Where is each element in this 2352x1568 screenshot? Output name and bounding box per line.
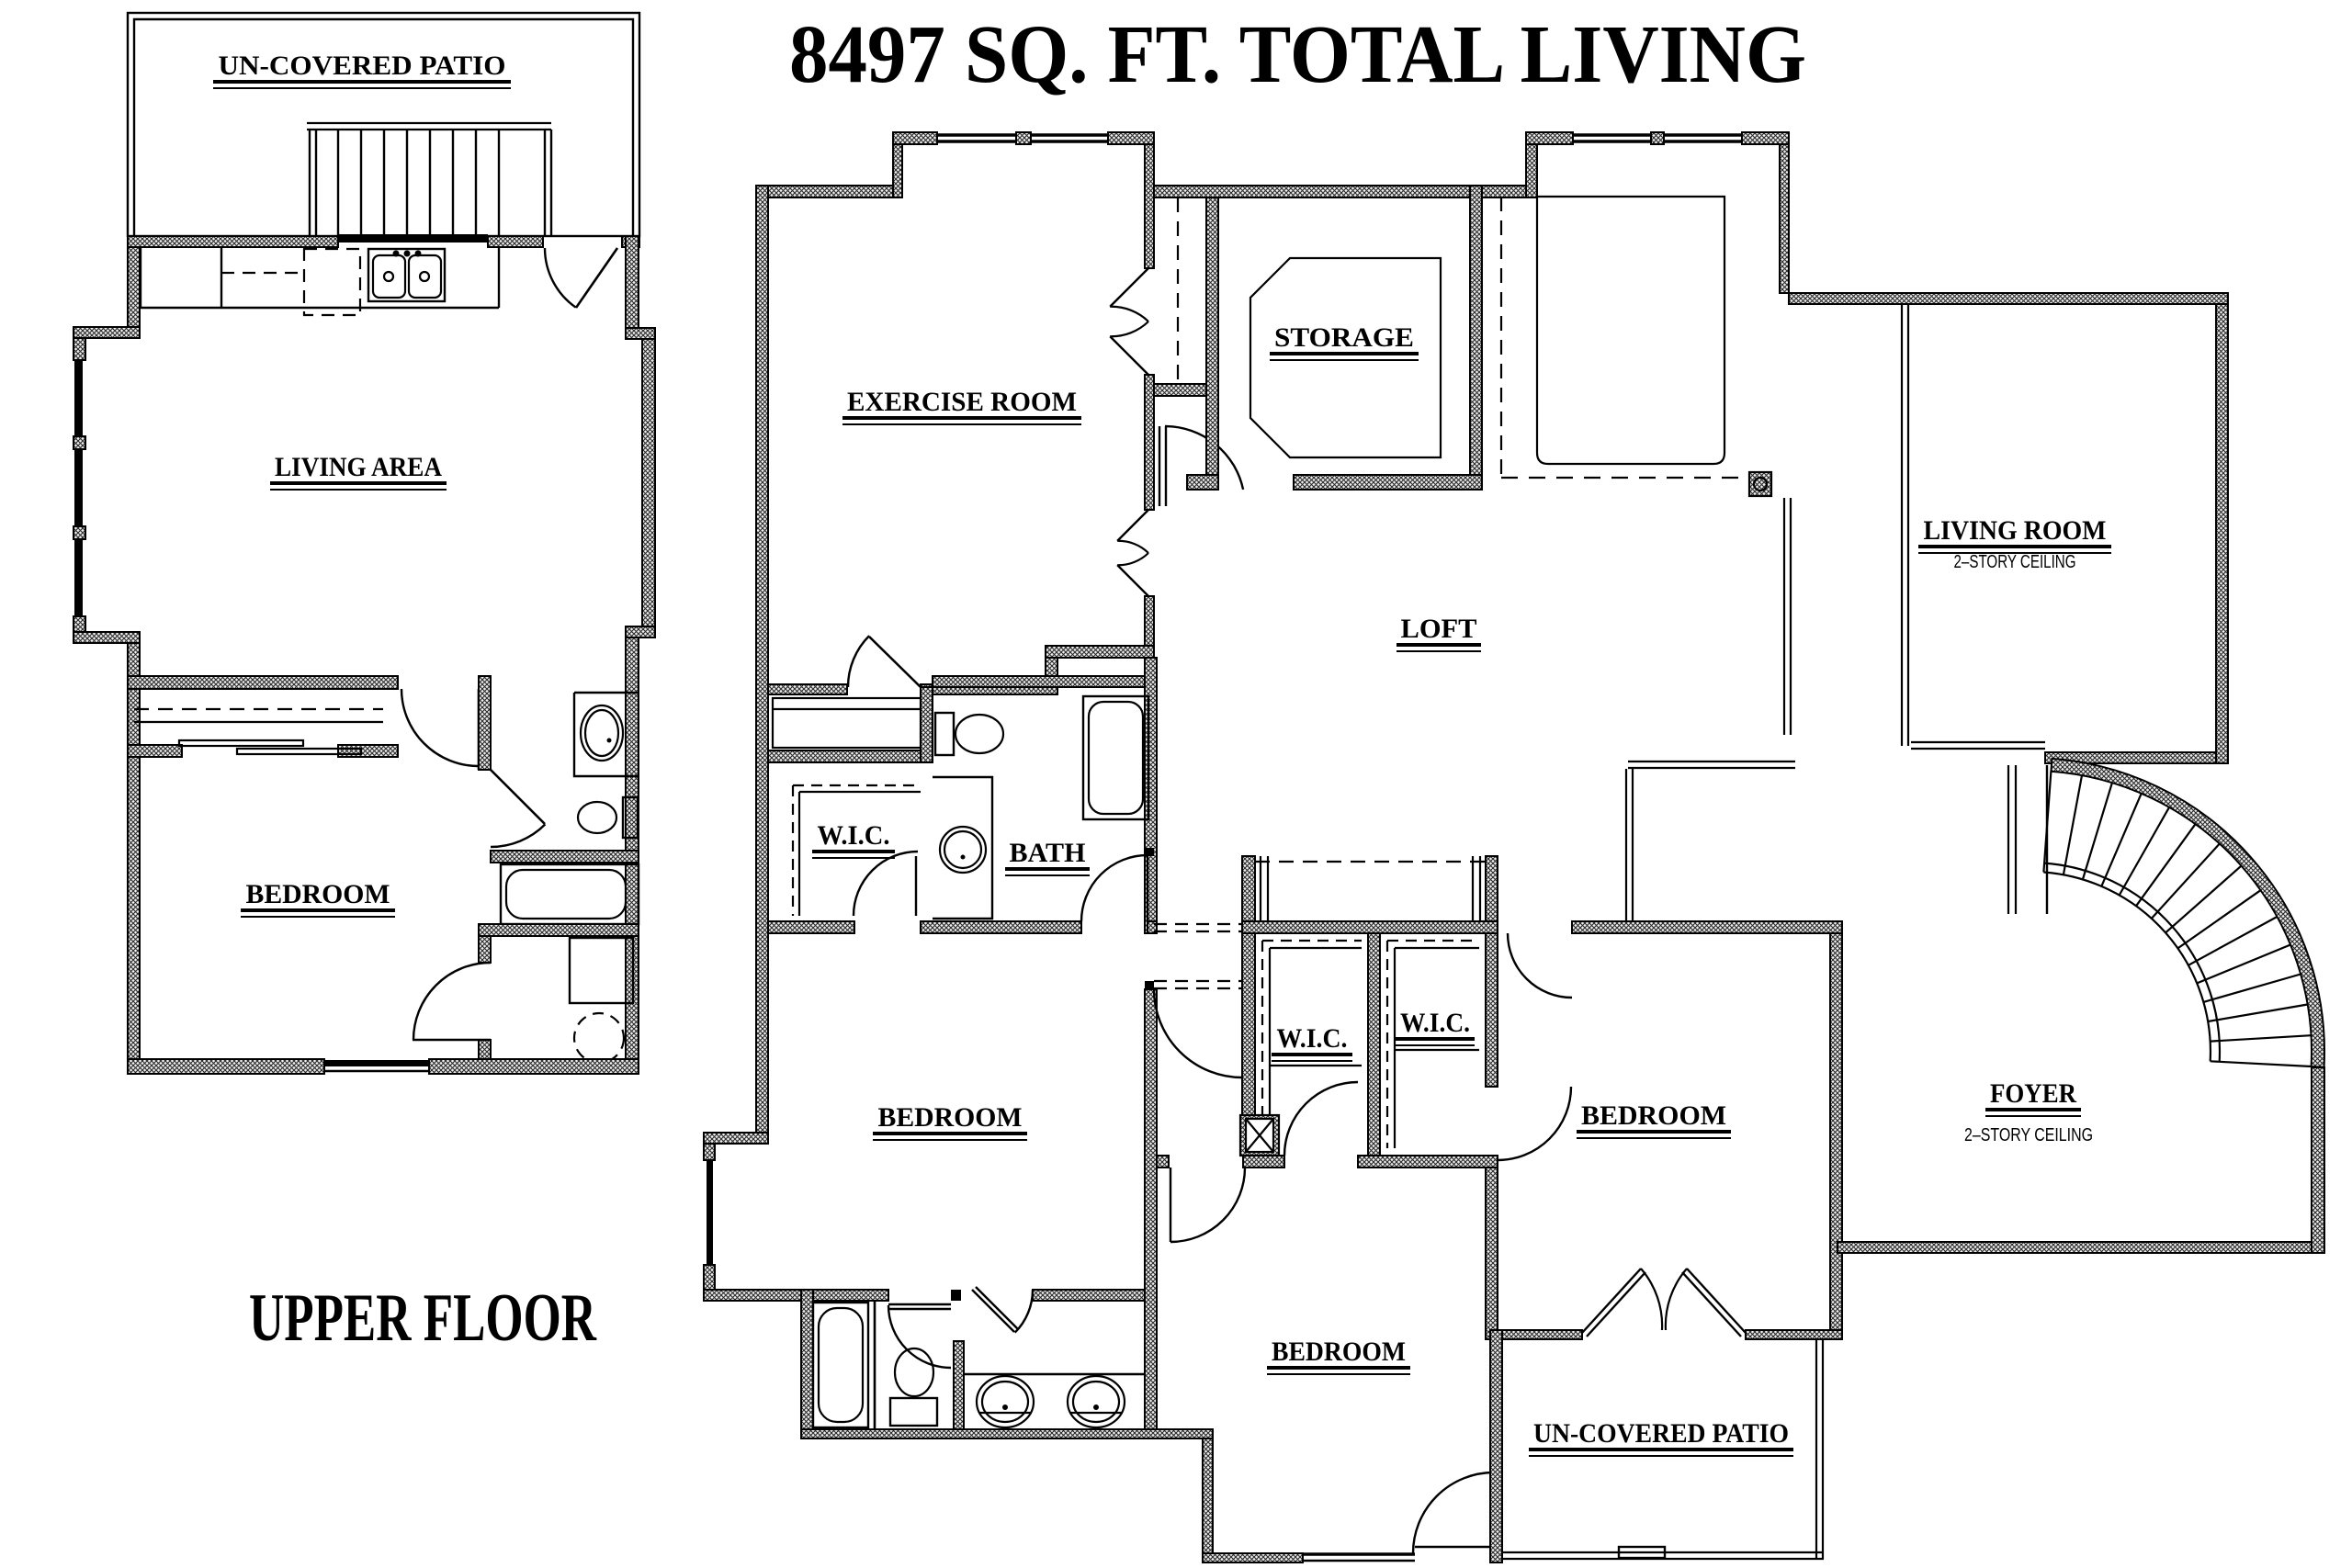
svg-text:STORAGE: STORAGE — [1274, 322, 1414, 353]
svg-text:BEDROOM: BEDROOM — [1272, 1337, 1406, 1367]
svg-text:LOFT: LOFT — [1401, 614, 1477, 644]
svg-text:LIVING ROOM: LIVING ROOM — [1924, 515, 2107, 546]
svg-text:BEDROOM: BEDROOM — [878, 1102, 1023, 1133]
svg-text:2–STORY CEILING: 2–STORY CEILING — [1954, 552, 2076, 572]
svg-text:8497 SQ. FT. TOTAL LIVING: 8497 SQ. FT. TOTAL LIVING — [789, 9, 1806, 100]
svg-text:UN-COVERED PATIO: UN-COVERED PATIO — [1533, 1418, 1789, 1449]
svg-text:W.I.C.: W.I.C. — [1277, 1023, 1348, 1054]
svg-text:EXERCISE ROOM: EXERCISE ROOM — [847, 387, 1077, 417]
svg-text:LIVING AREA: LIVING AREA — [275, 452, 442, 482]
svg-text:FOYER: FOYER — [1990, 1078, 2076, 1109]
svg-text:2–STORY CEILING: 2–STORY CEILING — [1964, 1125, 2093, 1145]
svg-text:BATH: BATH — [1010, 838, 1086, 868]
svg-text:BEDROOM: BEDROOM — [1581, 1100, 1726, 1131]
svg-text:BEDROOM: BEDROOM — [246, 879, 390, 909]
svg-text:W.I.C.: W.I.C. — [818, 820, 890, 851]
svg-text:UPPER FLOOR: UPPER FLOOR — [249, 1280, 597, 1356]
svg-text:W.I.C.: W.I.C. — [1400, 1008, 1470, 1038]
svg-text:UN-COVERED PATIO: UN-COVERED PATIO — [219, 51, 506, 81]
